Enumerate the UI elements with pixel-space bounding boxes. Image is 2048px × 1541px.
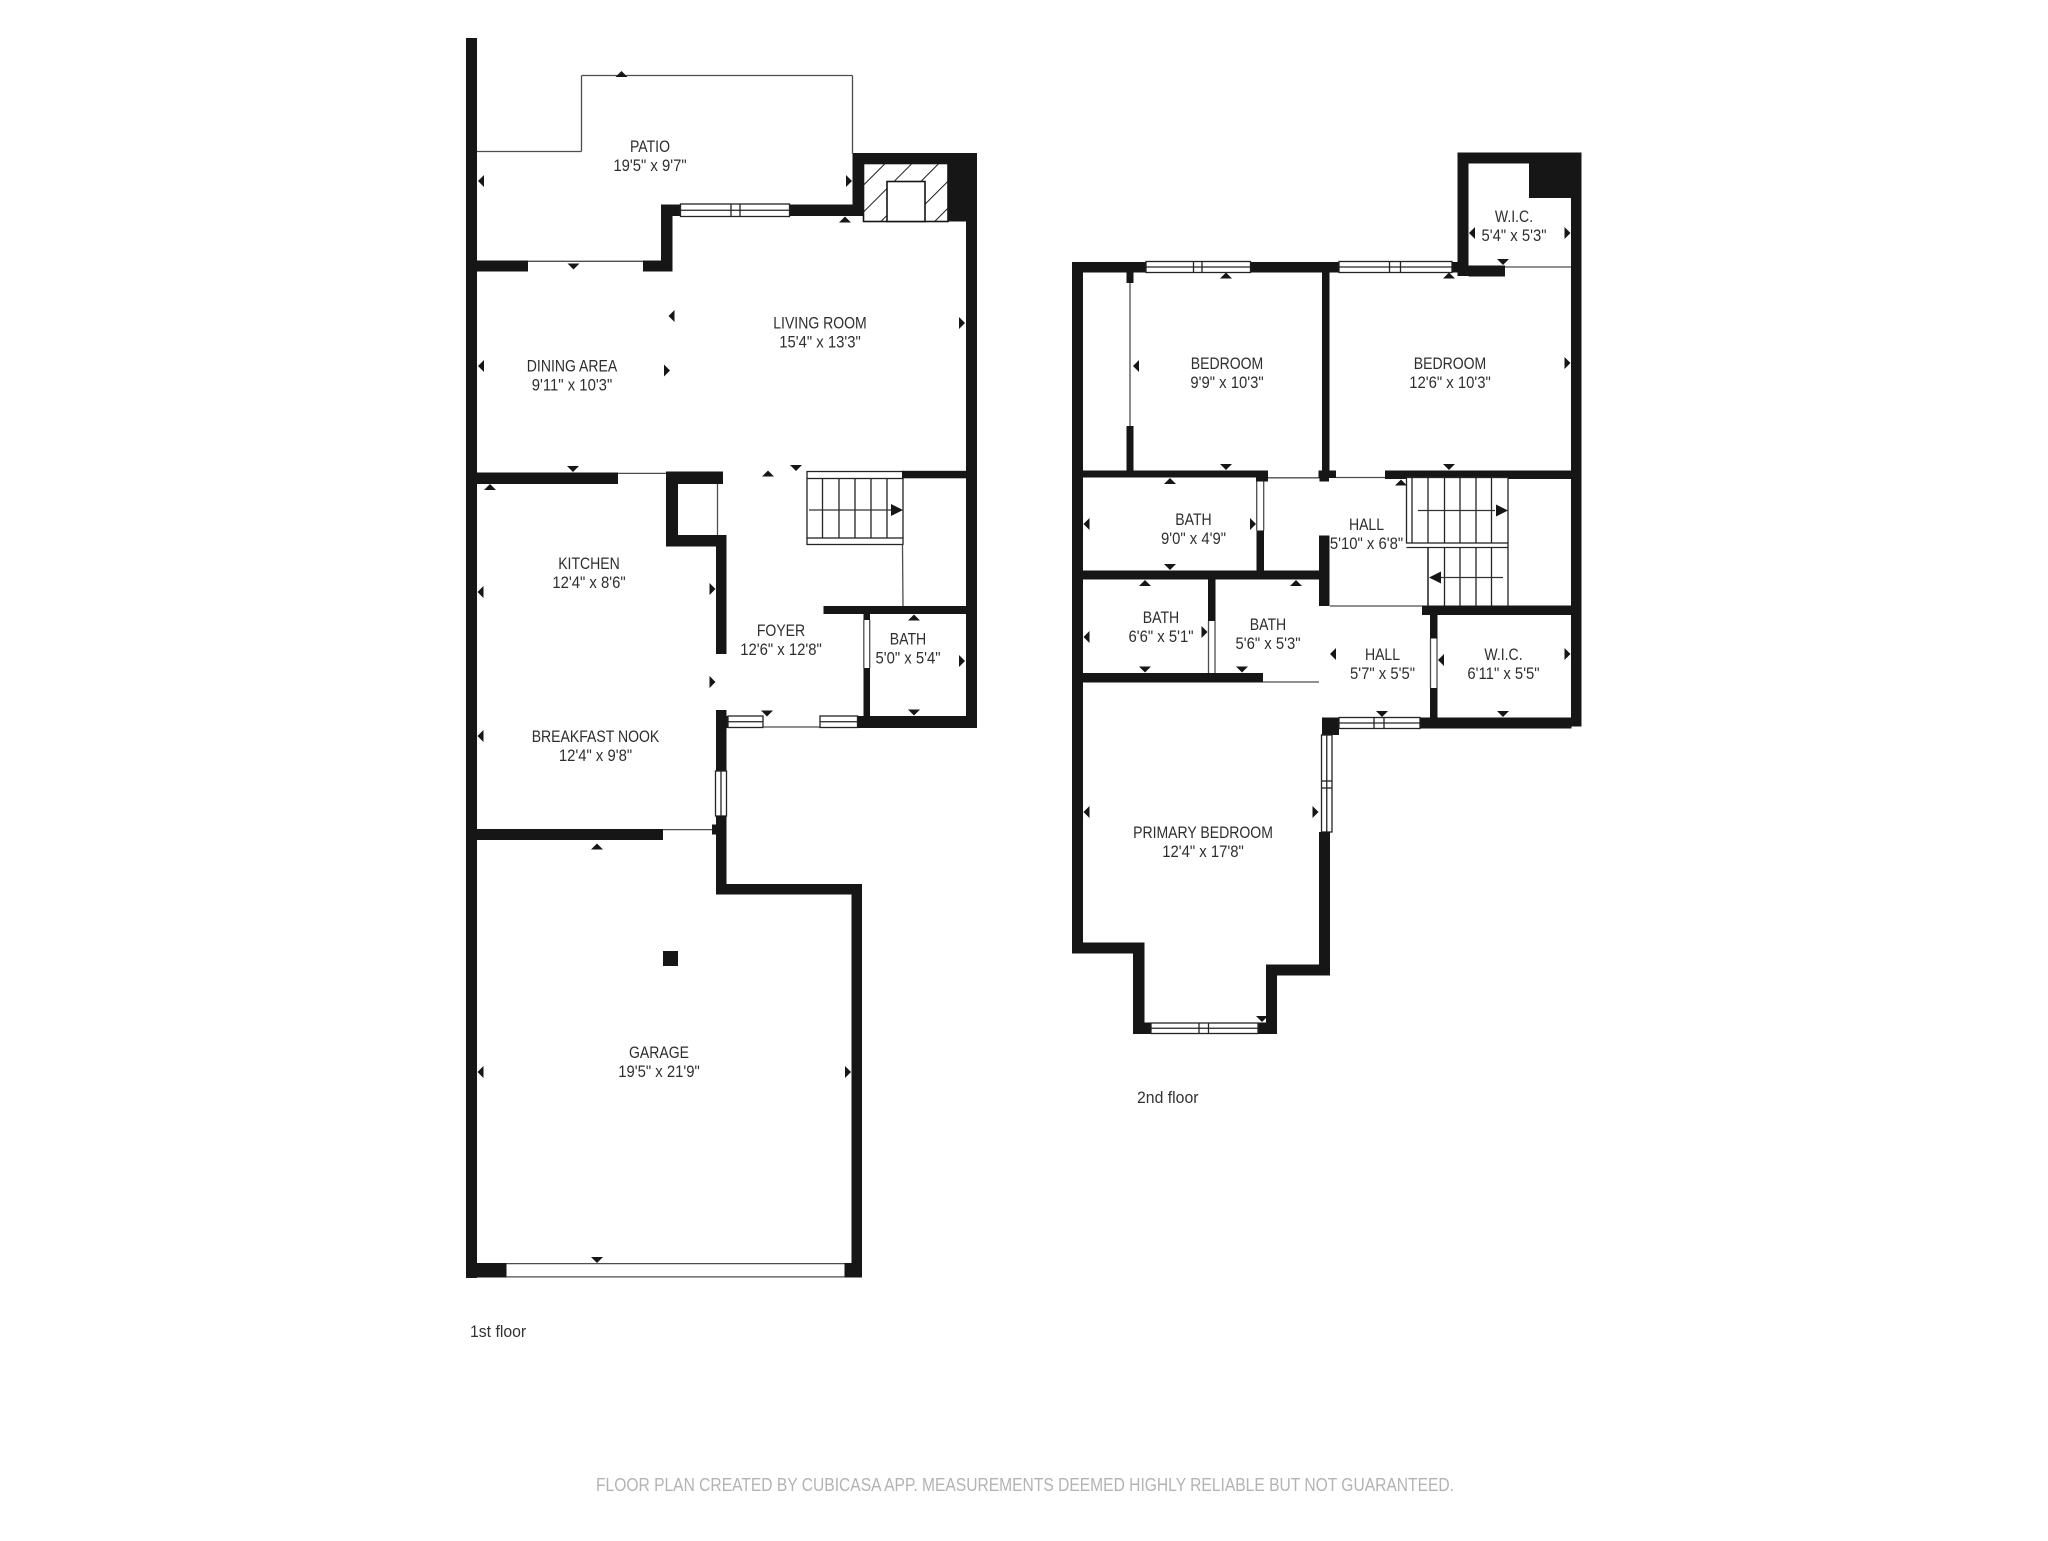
svg-text:BATH: BATH bbox=[1143, 608, 1179, 627]
svg-text:19'5" x 9'7": 19'5" x 9'7" bbox=[613, 156, 686, 175]
svg-text:12'6" x 10'3": 12'6" x 10'3" bbox=[1409, 373, 1491, 392]
svg-text:BATH: BATH bbox=[1175, 510, 1211, 529]
svg-text:LIVING ROOM: LIVING ROOM bbox=[773, 314, 867, 333]
svg-text:5'10" x 6'8": 5'10" x 6'8" bbox=[1330, 534, 1403, 553]
svg-text:9'0" x 4'9": 9'0" x 4'9" bbox=[1161, 529, 1226, 548]
svg-text:5'7" x 5'5": 5'7" x 5'5" bbox=[1350, 664, 1415, 683]
svg-text:FOYER: FOYER bbox=[757, 621, 805, 640]
svg-text:5'6" x 5'3": 5'6" x 5'3" bbox=[1236, 634, 1301, 653]
svg-text:BEDROOM: BEDROOM bbox=[1414, 354, 1487, 373]
svg-text:12'4" x 17'8": 12'4" x 17'8" bbox=[1162, 842, 1244, 861]
svg-text:HALL: HALL bbox=[1365, 645, 1400, 664]
svg-text:15'4" x 13'3": 15'4" x 13'3" bbox=[779, 333, 861, 352]
svg-text:2nd floor: 2nd floor bbox=[1137, 1088, 1199, 1107]
svg-text:HALL: HALL bbox=[1349, 515, 1384, 534]
svg-text:BREAKFAST NOOK: BREAKFAST NOOK bbox=[532, 727, 660, 746]
svg-text:6'11" x 5'5": 6'11" x 5'5" bbox=[1467, 664, 1539, 683]
svg-text:BEDROOM: BEDROOM bbox=[1191, 354, 1264, 373]
svg-text:5'4" x 5'3": 5'4" x 5'3" bbox=[1482, 226, 1547, 245]
svg-text:6'6" x 5'1": 6'6" x 5'1" bbox=[1129, 627, 1194, 646]
svg-text:12'6" x 12'8": 12'6" x 12'8" bbox=[740, 640, 822, 659]
svg-text:9'9" x 10'3": 9'9" x 10'3" bbox=[1190, 373, 1263, 392]
svg-text:W.I.C.: W.I.C. bbox=[1495, 207, 1533, 226]
svg-text:PRIMARY BEDROOM: PRIMARY BEDROOM bbox=[1133, 823, 1273, 842]
svg-text:BATH: BATH bbox=[890, 630, 926, 649]
svg-text:GARAGE: GARAGE bbox=[629, 1043, 689, 1062]
svg-text:KITCHEN: KITCHEN bbox=[558, 554, 620, 573]
svg-text:19'5" x 21'9": 19'5" x 21'9" bbox=[618, 1062, 700, 1081]
svg-text:FLOOR PLAN CREATED BY CUBICASA: FLOOR PLAN CREATED BY CUBICASA APP. MEAS… bbox=[596, 1475, 1454, 1495]
svg-text:12'4" x 9'8": 12'4" x 9'8" bbox=[559, 746, 632, 765]
svg-text:5'0" x 5'4": 5'0" x 5'4" bbox=[876, 649, 941, 668]
svg-text:1st floor: 1st floor bbox=[470, 1322, 527, 1341]
svg-text:PATIO: PATIO bbox=[630, 137, 670, 156]
svg-text:DINING AREA: DINING AREA bbox=[527, 357, 618, 376]
svg-text:12'4" x 8'6": 12'4" x 8'6" bbox=[552, 573, 625, 592]
svg-text:BATH: BATH bbox=[1250, 615, 1286, 634]
svg-text:W.I.C.: W.I.C. bbox=[1484, 645, 1522, 664]
svg-text:9'11" x 10'3": 9'11" x 10'3" bbox=[532, 376, 613, 395]
